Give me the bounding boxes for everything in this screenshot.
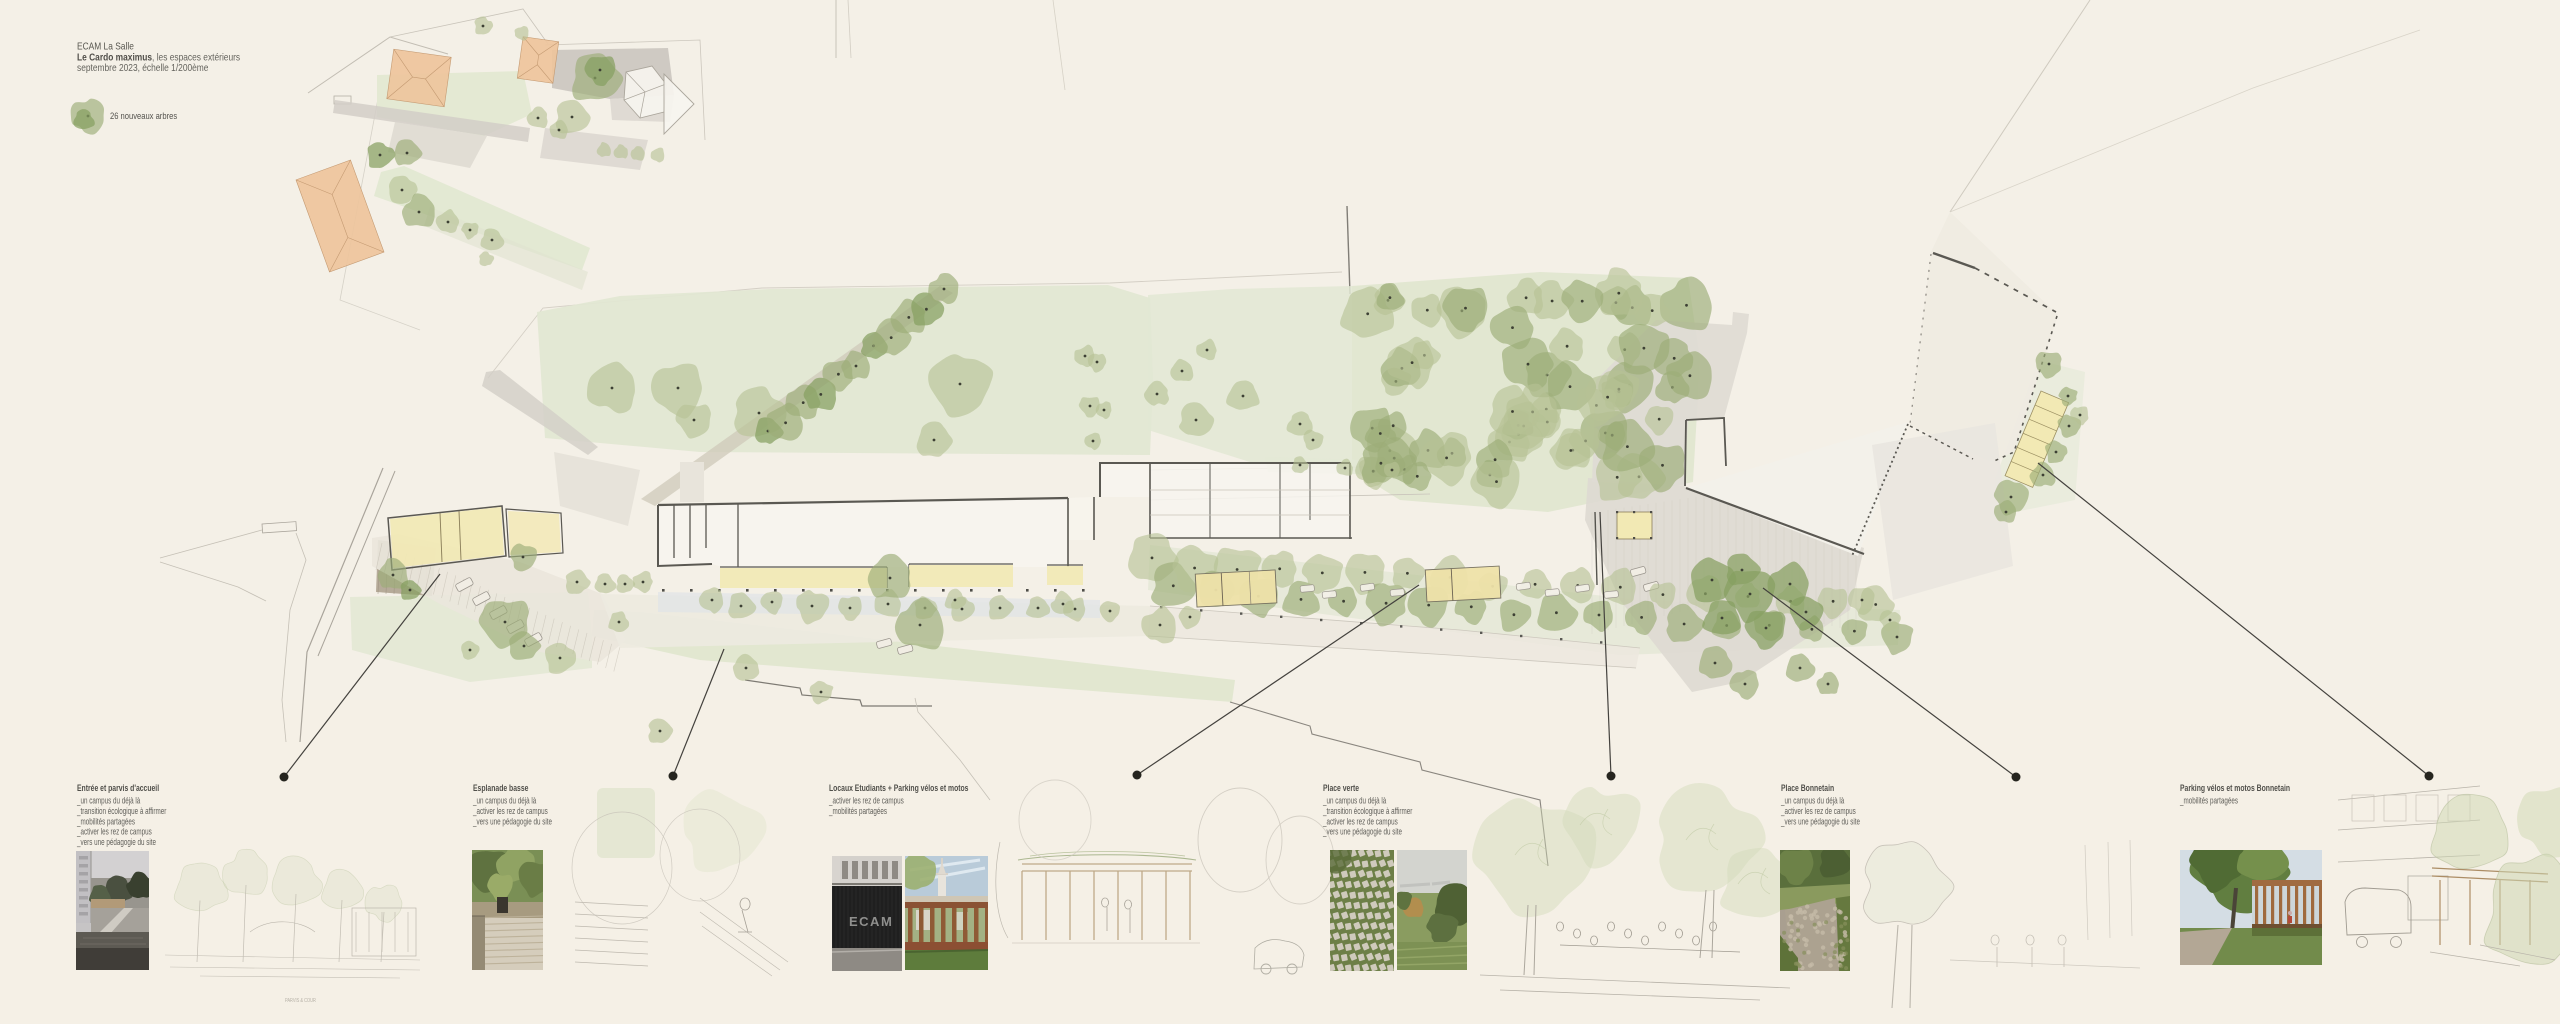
svg-text:Place Bonnetain: Place Bonnetain [1781, 783, 1834, 793]
svg-text:_un campus du déjà là: _un campus du déjà là [1322, 795, 1387, 805]
svg-text:_activer les rez de campus: _activer les rez de campus [472, 806, 548, 816]
svg-text:_activer les rez de campus: _activer les rez de campus [1322, 816, 1398, 826]
svg-text:_activer les rez de campus: _activer les rez de campus [76, 827, 152, 837]
svg-text:Esplanade basse: Esplanade basse [473, 783, 529, 793]
svg-text:_un campus du déjà là: _un campus du déjà là [76, 795, 141, 805]
svg-text:Parking vélos et motos Bonneta: Parking vélos et motos Bonnetain [2180, 783, 2290, 793]
svg-text:Place verte: Place verte [1323, 783, 1359, 793]
svg-text:ECAM La Salle: ECAM La Salle [77, 41, 134, 52]
svg-text:Le Cardo maximus, les espaces: Le Cardo maximus, les espaces extérieurs [77, 52, 240, 63]
svg-text:_vers une pédagogie du site: _vers une pédagogie du site [1322, 827, 1402, 837]
svg-text:Entrée et parvis d'accueil: Entrée et parvis d'accueil [77, 783, 159, 793]
svg-text:PARVIS & COUR: PARVIS & COUR [285, 998, 317, 1004]
svg-text:_vers une pédagogie du site: _vers une pédagogie du site [1780, 816, 1860, 826]
svg-text:_un campus du déjà là: _un campus du déjà là [472, 795, 537, 805]
svg-text:_transition écologique à affir: _transition écologique à affirmer [76, 806, 166, 816]
svg-text:_vers une pédagogie du site: _vers une pédagogie du site [472, 816, 552, 826]
svg-text:_mobilités partagées: _mobilités partagées [828, 806, 887, 816]
svg-text:26 nouveaux arbres: 26 nouveaux arbres [110, 110, 177, 121]
svg-text:_vers une pédagogie du site: _vers une pédagogie du site [76, 837, 156, 847]
svg-text:Locaux Etudiants + Parking vél: Locaux Etudiants + Parking vélos et moto… [829, 783, 969, 793]
svg-text:_activer les rez de campus: _activer les rez de campus [828, 795, 904, 805]
svg-text:_activer les rez de campus: _activer les rez de campus [1780, 806, 1856, 816]
svg-text:septembre 2023, échelle 1/200è: septembre 2023, échelle 1/200ème [77, 62, 208, 73]
svg-text:_mobilités partagées: _mobilités partagées [76, 816, 135, 826]
svg-text:_un campus du déjà là: _un campus du déjà là [1780, 795, 1845, 805]
svg-text:_transition écologique à affir: _transition écologique à affirmer [1322, 806, 1412, 816]
svg-text:_mobilités partagées: _mobilités partagées [2179, 795, 2238, 805]
svg-text:ECAM: ECAM [849, 914, 893, 929]
